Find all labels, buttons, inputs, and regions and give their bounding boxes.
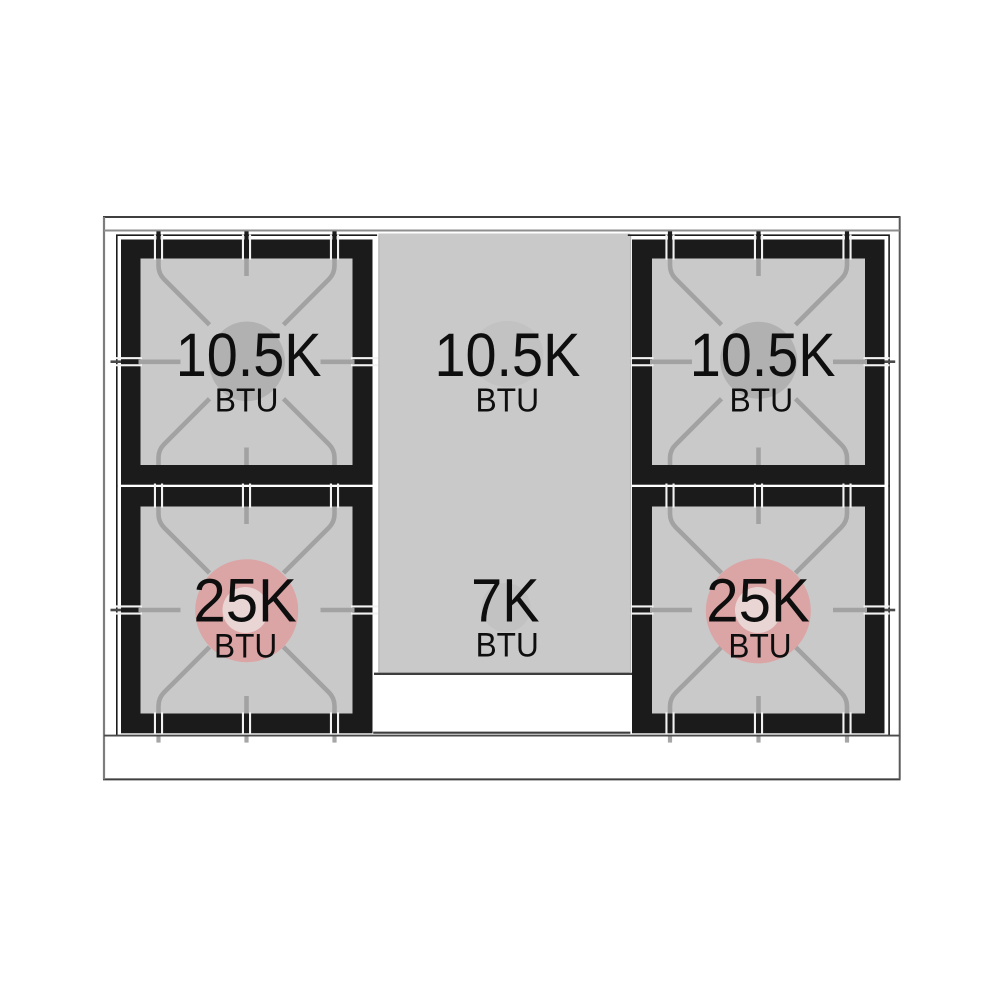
svg-text:BTU: BTU [475, 383, 539, 420]
svg-text:25K: 25K [193, 566, 297, 635]
svg-text:10.5K: 10.5K [690, 321, 836, 390]
svg-text:BTU: BTU [215, 383, 279, 420]
svg-text:10.5K: 10.5K [176, 321, 322, 390]
svg-text:BTU: BTU [729, 383, 793, 420]
svg-text:BTU: BTU [214, 627, 277, 665]
svg-text:25K: 25K [706, 566, 810, 635]
svg-text:10.5K: 10.5K [435, 321, 581, 390]
svg-text:BTU: BTU [728, 627, 791, 665]
svg-text:7K: 7K [471, 566, 539, 635]
svg-text:BTU: BTU [476, 626, 539, 664]
